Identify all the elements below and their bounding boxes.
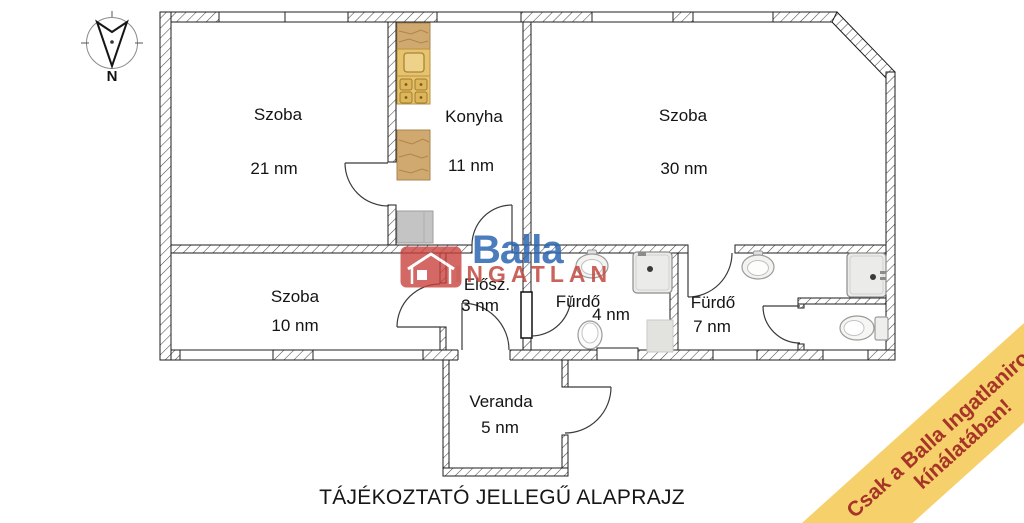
door-swing-arc bbox=[345, 163, 388, 206]
compass-icon bbox=[81, 11, 143, 69]
wall-segment bbox=[798, 298, 886, 304]
room-konyha-name: Konyha bbox=[414, 108, 534, 125]
toilet-icon bbox=[578, 321, 602, 349]
room-szoba10-area: 10 nm bbox=[235, 317, 355, 334]
wall-segment bbox=[798, 344, 804, 350]
wall-segment bbox=[388, 22, 396, 162]
window bbox=[180, 350, 273, 360]
disclaimer-text: TÁJÉKOZTATÓ JELLEGŰ ALAPRAJZ bbox=[252, 486, 752, 510]
window bbox=[592, 12, 673, 22]
wall-segment bbox=[160, 12, 171, 360]
window bbox=[713, 350, 757, 360]
room-konyha-area: 11 nm bbox=[411, 157, 531, 174]
refrigerator-icon bbox=[397, 211, 433, 243]
wall-segment bbox=[523, 22, 531, 245]
balla-logo-subtitle: INGATLAN bbox=[455, 263, 612, 286]
kitchen-fixtures bbox=[397, 23, 433, 243]
stove-icon bbox=[397, 76, 430, 104]
room-veranda-area: 5 nm bbox=[440, 419, 560, 436]
wall-segment bbox=[443, 468, 568, 476]
compass-north-label: N bbox=[100, 68, 124, 85]
washbasin-icon bbox=[742, 251, 774, 279]
room-veranda-name: Veranda bbox=[441, 393, 561, 410]
kitchen-counter-icon bbox=[397, 23, 430, 49]
room-szoba21-name: Szoba bbox=[218, 106, 338, 123]
room-szoba21-area: 21 nm bbox=[214, 160, 334, 177]
shower-icon bbox=[847, 253, 886, 297]
window bbox=[437, 12, 521, 22]
wall-segment bbox=[443, 360, 449, 476]
window bbox=[313, 350, 423, 360]
room-szoba30-area: 30 nm bbox=[624, 160, 744, 177]
toilet-icon bbox=[840, 316, 888, 340]
window bbox=[823, 350, 868, 360]
door-swing-arc bbox=[565, 387, 611, 433]
window bbox=[219, 12, 285, 22]
wall-segment bbox=[562, 360, 568, 387]
room-furdo7-name: Fürdő bbox=[653, 294, 773, 311]
wall-segment bbox=[523, 338, 531, 350]
wall-segment bbox=[388, 205, 396, 245]
balla-logo-house-icon bbox=[400, 246, 462, 288]
wall-segment bbox=[832, 12, 895, 78]
shower-icon bbox=[633, 252, 672, 293]
window bbox=[597, 348, 638, 360]
wall-segment bbox=[440, 327, 446, 350]
room-szoba10-name: Szoba bbox=[235, 288, 355, 305]
room-szoba30-name: Szoba bbox=[623, 107, 743, 124]
kitchen-sink-icon bbox=[397, 49, 430, 76]
room-furdo7-area: 7 nm bbox=[652, 318, 772, 335]
window bbox=[693, 12, 773, 22]
floorplan-canvas: N Szoba 21 nm Konyha 11 nm Szoba 30 nm S… bbox=[0, 0, 1024, 523]
door-swing-arc bbox=[688, 253, 732, 297]
window bbox=[285, 12, 348, 22]
entrance-opening bbox=[458, 350, 510, 361]
